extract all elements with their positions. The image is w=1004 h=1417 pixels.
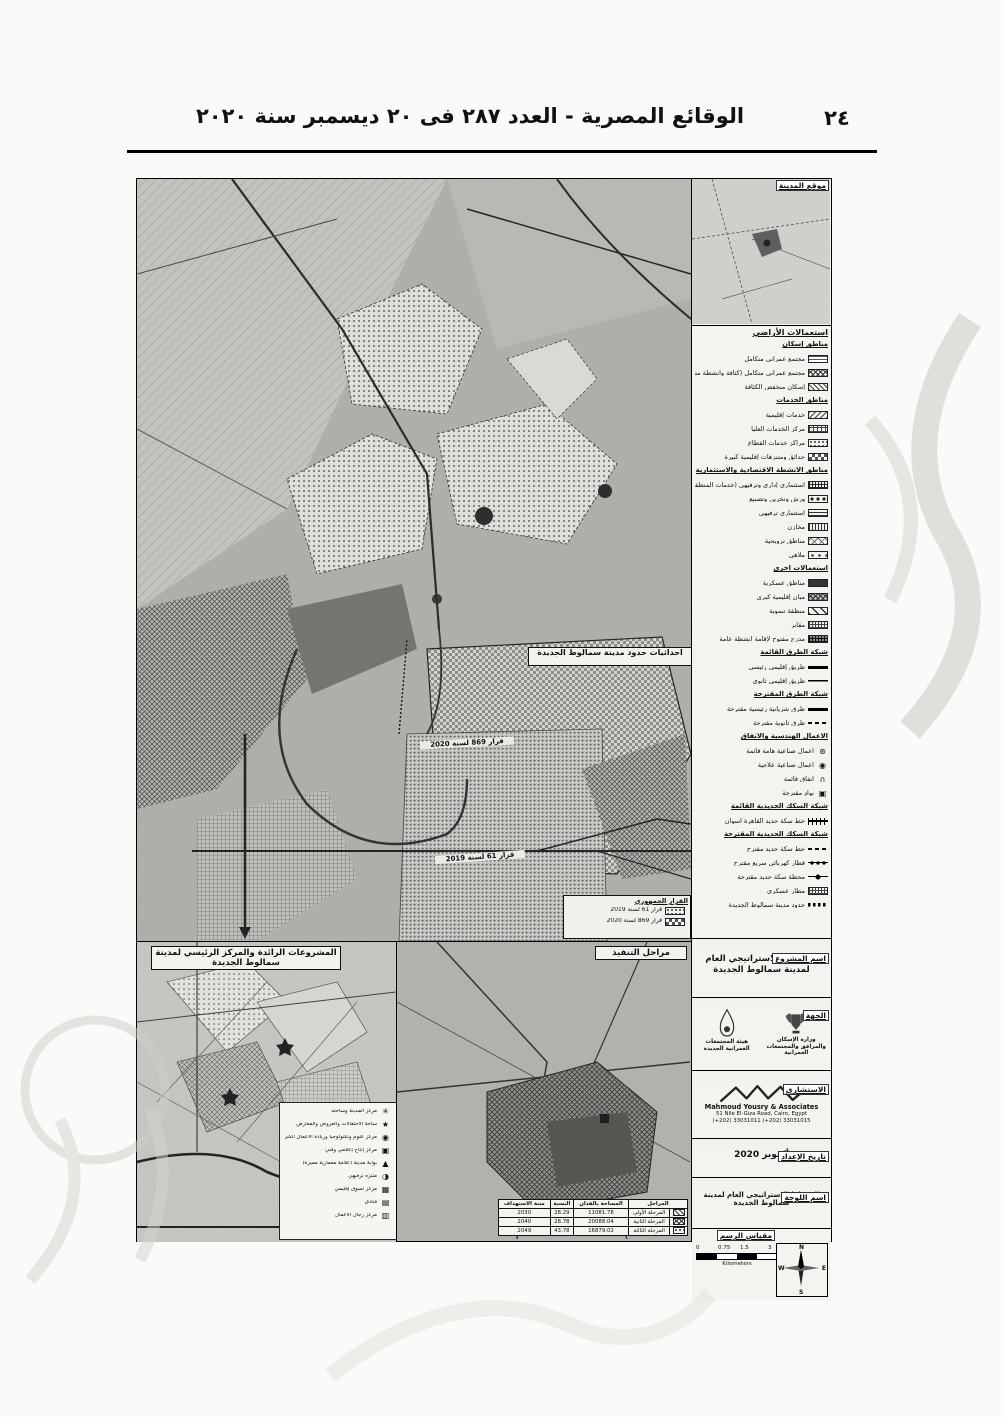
location-inset-section: موقع المدينة bbox=[692, 179, 831, 326]
pioneer-legend-icon: ▣ bbox=[380, 1146, 391, 1155]
decree-legend-title: القرار الجمهوري bbox=[566, 897, 688, 905]
consultant-name: Mahmoud Yousry & Associates bbox=[692, 1103, 831, 1111]
legend-row: ∩ أنفاق قائمة bbox=[692, 772, 831, 786]
legend-icon: ⊛ bbox=[817, 747, 828, 756]
pioneer-panel-title: المشروعات الرائدة والمركز الرئيسي لمدينة… bbox=[151, 946, 341, 970]
legend-swatch bbox=[808, 509, 828, 517]
legend-swatch bbox=[808, 411, 828, 419]
main-strategic-map: احداثيات حدود مدينة سمالوط الجديدة قرار … bbox=[137, 179, 691, 941]
legend-swatch bbox=[808, 425, 828, 433]
gazette-header-title: الوقائع المصرية - العدد ٢٨٧ فى ٢٠ ديسمبر… bbox=[160, 104, 780, 128]
phase-percent: 43.78 bbox=[550, 1226, 574, 1235]
scale-bar bbox=[696, 1253, 778, 1260]
phase-name: المرحلة الثانية bbox=[628, 1217, 669, 1226]
legend-label: طرق ثانوية مقترحة bbox=[753, 720, 805, 727]
decree-legend-row: قرار 61 لسنة 2019 bbox=[566, 905, 688, 916]
legend-label: مدرج مفتوح لإقامة أنشطة عامة bbox=[719, 636, 805, 643]
legend-swatch bbox=[808, 817, 828, 825]
legend-row: شبكة السكك الحديدية القائمة bbox=[692, 800, 831, 814]
col-area: المساحة بالفدان bbox=[574, 1199, 629, 1208]
header-rule bbox=[127, 150, 877, 153]
legend-row: مناطق الأنشطة الاقتصادية والاستثمارية bbox=[692, 464, 831, 478]
phase-percent: 28.78 bbox=[550, 1217, 574, 1226]
phases-panel-title: مراحل التنفيذ bbox=[595, 946, 687, 960]
date-section-label: تاريخ الإعداد bbox=[778, 1151, 829, 1162]
legend-swatch bbox=[808, 859, 828, 867]
legend-row: مطار عسكري bbox=[692, 884, 831, 898]
legend-row: خط سكة حديد القاهرة أسوان bbox=[692, 814, 831, 828]
scale-bar-block: 0 0.75 1.5 3 Kilometers bbox=[696, 1245, 778, 1267]
legend-row: ◉ أعمال صناعية علاجية bbox=[692, 758, 831, 772]
legend-row: مناطق ترويحية bbox=[692, 534, 831, 548]
legend-row: خدمات إقليمية bbox=[692, 408, 831, 422]
pioneer-legend-row: ✳ مركز المدينة وساحته bbox=[282, 1105, 394, 1118]
pioneer-legend-label: مركز إنتاج إعلامي وفني bbox=[325, 1148, 377, 1154]
legend-swatch bbox=[808, 551, 828, 559]
legend-row: مركز الخدمات العليا bbox=[692, 422, 831, 436]
col-phase: المراحل bbox=[628, 1199, 687, 1208]
legend-label: محطة سكة حديد مقترحة bbox=[737, 874, 805, 881]
pioneer-legend-icon: ◑ bbox=[380, 1172, 391, 1181]
legend-swatch bbox=[808, 663, 828, 671]
legend-row: شبكة السكك الحديدية المقترحة bbox=[692, 828, 831, 842]
scale-tick: 3 bbox=[768, 1245, 772, 1251]
pioneer-legend-label: مركز المدينة وساحته bbox=[331, 1109, 377, 1115]
agency-section: الجهة وزارة الإسكان والمرافق والمجتمعات … bbox=[692, 1009, 831, 1071]
pioneer-legend-row: ★ ساحة الاحتفالات والعروض والمعارض bbox=[282, 1118, 394, 1131]
legend-label: مركز الخدمات العليا bbox=[751, 426, 805, 433]
phases-table-header: المراحل المساحة بالفدان النسبة سنة الاست… bbox=[499, 1199, 688, 1208]
phase-area: 11081.78 bbox=[574, 1208, 629, 1217]
legend-row: ⊛ أعمال صناعية هامة قائمة bbox=[692, 744, 831, 758]
legend-row: طريق إقليمي ثانوي bbox=[692, 674, 831, 688]
pioneer-legend-label: بوابة مدينة (علامة معمارية مميزة) bbox=[302, 1161, 377, 1167]
pioneer-legend-label: فنادق bbox=[365, 1200, 377, 1206]
legend-label: مخازن bbox=[787, 524, 805, 531]
pioneer-legend-icon: ◉ bbox=[380, 1133, 391, 1142]
legend-label: منطقة تنموية bbox=[769, 608, 805, 615]
nuca-logo-block: هيئة المجتمعات العمرانية الجديدة bbox=[696, 1009, 758, 1052]
pioneer-projects-panel: المشروعات الرائدة والمركز الرئيسي لمدينة… bbox=[137, 941, 396, 1242]
consultant-phone: (+202) 33031011 (+202) 33031015 bbox=[692, 1118, 831, 1125]
legend-title: استعمالات الأراضي bbox=[692, 326, 831, 338]
legend-swatch bbox=[808, 887, 828, 895]
sheet-name-label: اسم اللوحة bbox=[781, 1192, 829, 1203]
pioneer-legend-icon: ▥ bbox=[380, 1211, 391, 1220]
landuse-legend-section: استعمالات الأراضي مناطق إسكان مجتمع عمرا… bbox=[692, 326, 831, 939]
pioneer-legend-icon: ▲ bbox=[380, 1159, 391, 1168]
scanned-gazette-page: { "page": { "number": "٢٤", "header_titl… bbox=[0, 0, 1004, 1417]
legend-swatch bbox=[808, 523, 828, 531]
scale-unit: Kilometers bbox=[696, 1261, 778, 1267]
legend-label: أنفاق قائمة bbox=[784, 776, 814, 783]
legend-label: مناطق الخدمات bbox=[776, 397, 828, 404]
legend-swatch bbox=[808, 383, 828, 391]
legend-swatch bbox=[808, 369, 828, 377]
compass-south: S bbox=[799, 1289, 803, 1296]
legend-row: خط سكة حديد مقترح bbox=[692, 842, 831, 856]
legend-swatch bbox=[808, 901, 828, 909]
legend-row: استعمالات أخرى bbox=[692, 562, 831, 576]
legend-label: قطار كهربائي سريع مقترح bbox=[734, 860, 805, 867]
legend-swatch bbox=[808, 481, 828, 489]
compass-east: E bbox=[822, 1265, 826, 1272]
decree-label: قرار 61 لسنة 2019 bbox=[610, 907, 662, 913]
legend-label: استثماري ترفيهي bbox=[759, 510, 805, 517]
decree-legend-rows: قرار 61 لسنة 2019 قرار 869 لسنة 2020 bbox=[566, 905, 688, 927]
legend-swatch bbox=[808, 439, 828, 447]
legend-row: ملاهي bbox=[692, 548, 831, 562]
legend-label: مناطق إسكان bbox=[782, 341, 828, 348]
pioneer-legend-row: ▣ مركز إنتاج إعلامي وفني bbox=[282, 1144, 394, 1157]
phase-year: 2030 bbox=[499, 1208, 551, 1217]
pioneer-legend-icon: ✳ bbox=[380, 1107, 391, 1116]
consultant-section-label: الاستشاري bbox=[783, 1084, 829, 1095]
legend-label: مناطق الأنشطة الاقتصادية والاستثمارية bbox=[696, 467, 828, 474]
pioneer-legend-label: متنزه ترفيهي bbox=[348, 1174, 377, 1180]
legend-label: طريق إقليمي ثانوي bbox=[753, 678, 805, 685]
phase-swatch bbox=[673, 1227, 685, 1234]
col-percent: النسبة bbox=[550, 1199, 574, 1208]
legend-row: منطقة تنموية bbox=[692, 604, 831, 618]
pioneer-legend-row: ▤ فنادق bbox=[282, 1196, 394, 1209]
legend-icon: ∩ bbox=[817, 775, 828, 784]
legend-label: إسكان منخفض الكثافة bbox=[744, 384, 805, 391]
phase-area: 16879.02 bbox=[574, 1226, 629, 1235]
legend-label: مناطق ترويحية bbox=[765, 538, 805, 545]
presidential-decree-legend: القرار الجمهوري قرار 61 لسنة 2019 قرار 8… bbox=[563, 895, 691, 939]
legend-label: طريق إقليمي رئيسي bbox=[749, 664, 805, 671]
legend-swatch bbox=[808, 677, 828, 685]
phases-map bbox=[397, 942, 690, 1239]
legend-label: مقابر bbox=[791, 622, 805, 629]
pioneer-legend-label: مركز علوم وتكنولوجيا وريادة الأعمال الكب… bbox=[285, 1135, 377, 1141]
legend-row: حدود مدينة سمالوط الجديدة bbox=[692, 898, 831, 912]
legend-label: نوادٍ مقترحة bbox=[782, 790, 814, 797]
pioneer-legend-label: مركز رجال الأعمال bbox=[335, 1213, 377, 1219]
legend-label: مجتمع عمراني متكامل (كثافة وأنشطة متعددة… bbox=[695, 370, 805, 377]
implementation-phases-panel: مراحل التنفيذ المراحل المساحة بالفدان ال… bbox=[396, 941, 691, 1241]
legend-row: مناطق عسكرية bbox=[692, 576, 831, 590]
scale-tick: 0 bbox=[696, 1245, 700, 1251]
legend-swatch bbox=[808, 845, 828, 853]
project-name-section: اسم المشروع المخطط الاستراتيجي العام لمد… bbox=[692, 952, 831, 998]
project-section-label: اسم المشروع bbox=[772, 953, 829, 964]
legend-label: الأعمال الهندسية والأنفاق bbox=[741, 733, 828, 740]
legend-row: مراكز خدمات القطاع bbox=[692, 436, 831, 450]
pioneer-legend-row: ▥ مركز رجال الأعمال bbox=[282, 1209, 394, 1222]
legend-label: أعمال صناعية هامة قائمة bbox=[746, 748, 814, 755]
legend-swatch bbox=[808, 873, 828, 881]
legend-row: شبكة الطرق المقترحة bbox=[692, 688, 831, 702]
pioneer-panel-legend: ✳ مركز المدينة وساحته ★ ساحة الاحتفالات … bbox=[279, 1102, 396, 1240]
legend-icon: ▣ bbox=[817, 789, 828, 798]
legend-label: خدمات إقليمية bbox=[766, 412, 805, 419]
legend-swatch bbox=[808, 621, 828, 629]
watermark-artifact bbox=[320, 1255, 720, 1395]
scale-tick: 0.75 bbox=[718, 1245, 730, 1251]
agency-section-label: الجهة bbox=[803, 1010, 829, 1021]
legend-row: الأعمال الهندسية والأنفاق bbox=[692, 730, 831, 744]
phases-table: المراحل المساحة بالفدان النسبة سنة الاست… bbox=[498, 1199, 688, 1236]
city-boundary-coordinates-box: احداثيات حدود مدينة سمالوط الجديدة bbox=[528, 647, 691, 666]
legend-label: شبكة الطرق المقترحة bbox=[754, 691, 828, 698]
legend-swatch bbox=[808, 453, 828, 461]
watermark-artifact bbox=[830, 300, 1004, 800]
location-inset-map bbox=[692, 179, 830, 324]
phases-table-row: المرحلة الثالثة 16879.02 43.78 2049 bbox=[499, 1226, 688, 1235]
main-map-drawing bbox=[137, 179, 691, 941]
phase-year: 2049 bbox=[499, 1226, 551, 1235]
legend-label: خط سكة حديد مقترح bbox=[747, 846, 805, 853]
legend-row: مبانٍ إقليمية كبرى bbox=[692, 590, 831, 604]
legend-row: مجتمع عمراني متكامل bbox=[692, 352, 831, 366]
scale-tick: 1.5 bbox=[740, 1245, 749, 1251]
decree-swatch bbox=[665, 907, 685, 915]
legend-label: حدائق ومتنزهات إقليمية كبيرة bbox=[724, 454, 805, 461]
legend-swatch bbox=[808, 495, 828, 503]
legend-label: مجتمع عمراني متكامل bbox=[744, 356, 805, 363]
ministry-caption: وزارة الإسكان والمرافق والمجتمعات العمرا… bbox=[765, 1037, 827, 1057]
phase-area: 20088.04 bbox=[574, 1217, 629, 1226]
legend-row: طرق ثانوية مقترحة bbox=[692, 716, 831, 730]
decree-legend-row: قرار 869 لسنة 2020 bbox=[566, 916, 688, 927]
legend-label: شبكة السكك الحديدية القائمة bbox=[731, 803, 828, 810]
legend-row: ورش وتخزين وتصنيع bbox=[692, 492, 831, 506]
legend-row: استثماري إداري وترفيهي (خدمات المنطقة ال… bbox=[692, 478, 831, 492]
legend-row: مدرج مفتوح لإقامة أنشطة عامة bbox=[692, 632, 831, 646]
legend-label: مطار عسكري bbox=[767, 888, 805, 895]
legend-row: مناطق الخدمات bbox=[692, 394, 831, 408]
legend-label: خط سكة حديد القاهرة أسوان bbox=[725, 818, 805, 825]
legend-row: حدائق ومتنزهات إقليمية كبيرة bbox=[692, 450, 831, 464]
legend-label: استعمالات أخرى bbox=[773, 565, 828, 572]
legend-row: طرق شريانية رئيسية مقترحة bbox=[692, 702, 831, 716]
legend-entries: مناطق إسكان مجتمع عمراني متكامل مجتمع عم… bbox=[692, 338, 831, 912]
phase-percent: 28.29 bbox=[550, 1208, 574, 1217]
consultant-section: الاستشاري Mahmoud Yousry & Associates 51… bbox=[692, 1083, 831, 1139]
legend-row: استثماري ترفيهي bbox=[692, 506, 831, 520]
phase-swatch-cell bbox=[670, 1226, 688, 1235]
phases-table-row: المرحلة الأولى 11081.78 28.29 2030 bbox=[499, 1208, 688, 1217]
legend-label: مبانٍ إقليمية كبرى bbox=[757, 594, 805, 601]
legend-row: طريق إقليمي رئيسي bbox=[692, 660, 831, 674]
page-number: ٢٤ bbox=[812, 106, 862, 130]
consultant-address: 51 Nile El-Giza Road, Cairo, Egypt bbox=[692, 1111, 831, 1118]
preparation-date-section: تاريخ الإعداد أكتوبر 2020 bbox=[692, 1150, 831, 1178]
legend-label: استثماري إداري وترفيهي (خدمات المنطقة ال… bbox=[695, 482, 805, 489]
legend-swatch bbox=[808, 579, 828, 587]
pioneer-legend-icon: ▤ bbox=[380, 1198, 391, 1207]
nuca-drop-logo-icon bbox=[716, 1009, 738, 1039]
compass-north: N bbox=[799, 1244, 804, 1251]
map-sidebar: موقع المدينة استعمالات الأراضي مناطق إسك… bbox=[691, 179, 831, 1241]
legend-swatch bbox=[808, 607, 828, 615]
legend-swatch bbox=[808, 705, 828, 713]
decree-label: قرار 869 لسنة 2020 bbox=[607, 918, 662, 924]
legend-row: إسكان منخفض الكثافة bbox=[692, 380, 831, 394]
legend-label: شبكة السكك الحديدية المقترحة bbox=[724, 831, 828, 838]
phase-swatch-cell bbox=[670, 1217, 688, 1226]
legend-row: مجتمع عمراني متكامل (كثافة وأنشطة متعددة… bbox=[692, 366, 831, 380]
phase-swatch bbox=[673, 1218, 685, 1225]
pioneer-legend-label: ساحة الاحتفالات والعروض والمعارض bbox=[296, 1122, 377, 1128]
pioneer-legend-label: مركز تسوق إقليمي bbox=[335, 1187, 377, 1193]
legend-swatch bbox=[808, 537, 828, 545]
map-sheet: احداثيات حدود مدينة سمالوط الجديدة قرار … bbox=[136, 178, 832, 1242]
phase-swatch bbox=[673, 1209, 685, 1216]
phase-year: 2040 bbox=[499, 1217, 551, 1226]
legend-label: حدود مدينة سمالوط الجديدة bbox=[729, 902, 805, 909]
inset-title: موقع المدينة bbox=[776, 180, 829, 191]
pioneer-legend-row: ▦ مركز تسوق إقليمي bbox=[282, 1183, 394, 1196]
pioneer-legend-row: ▲ بوابة مدينة (علامة معمارية مميزة) bbox=[282, 1157, 394, 1170]
legend-label: أعمال صناعية علاجية bbox=[758, 762, 814, 769]
legend-label: ورش وتخزين وتصنيع bbox=[749, 496, 805, 503]
pioneer-legend-row: ◉ مركز علوم وتكنولوجيا وريادة الأعمال ال… bbox=[282, 1131, 394, 1144]
pioneer-legend-row: ◑ متنزه ترفيهي bbox=[282, 1170, 394, 1183]
phase-swatch-cell bbox=[670, 1208, 688, 1217]
scale-section-label: مقياس الرسم bbox=[717, 1230, 775, 1241]
pioneer-legend-icon: ▦ bbox=[380, 1185, 391, 1194]
col-year: سنة الاستهداف bbox=[499, 1199, 551, 1208]
legend-row: قطار كهربائي سريع مقترح bbox=[692, 856, 831, 870]
legend-label: شبكة الطرق القائمة bbox=[760, 649, 828, 656]
scale-compass-section: مقياس الرسم 0 0.75 1.5 3 Kilometers N bbox=[692, 1229, 831, 1301]
legend-label: مراكز خدمات القطاع bbox=[748, 440, 805, 447]
legend-row: شبكة الطرق القائمة bbox=[692, 646, 831, 660]
legend-row: ▣ نوادٍ مقترحة bbox=[692, 786, 831, 800]
legend-swatch bbox=[808, 635, 828, 643]
legend-label: طرق شريانية رئيسية مقترحة bbox=[727, 706, 805, 713]
scale-ticks: 0 0.75 1.5 3 bbox=[696, 1245, 778, 1253]
legend-icon: ◉ bbox=[817, 761, 828, 770]
legend-swatch bbox=[808, 719, 828, 727]
phases-table-row: المرحلة الثانية 20088.04 28.78 2040 bbox=[499, 1217, 688, 1226]
legend-swatch bbox=[808, 355, 828, 363]
legend-swatch bbox=[808, 593, 828, 601]
pioneer-legend-icon: ★ bbox=[380, 1120, 391, 1129]
phase-name: المرحلة الأولى bbox=[628, 1208, 669, 1217]
legend-row: مخازن bbox=[692, 520, 831, 534]
legend-row: مناطق إسكان bbox=[692, 338, 831, 352]
compass-rose: N E S W bbox=[776, 1243, 828, 1297]
legend-label: مناطق عسكرية bbox=[763, 580, 805, 587]
compass-west: W bbox=[778, 1265, 785, 1272]
legend-row: محطة سكة حديد مقترحة bbox=[692, 870, 831, 884]
legend-label: ملاهي bbox=[789, 552, 805, 559]
sheet-name-section: اسم اللوحة المخطط الاستراتيجي العام لمدي… bbox=[692, 1191, 831, 1229]
nuca-caption: هيئة المجتمعات العمرانية الجديدة bbox=[696, 1039, 758, 1052]
decree-swatch bbox=[665, 918, 685, 926]
legend-row: مقابر bbox=[692, 618, 831, 632]
phase-name: المرحلة الثالثة bbox=[628, 1226, 669, 1235]
